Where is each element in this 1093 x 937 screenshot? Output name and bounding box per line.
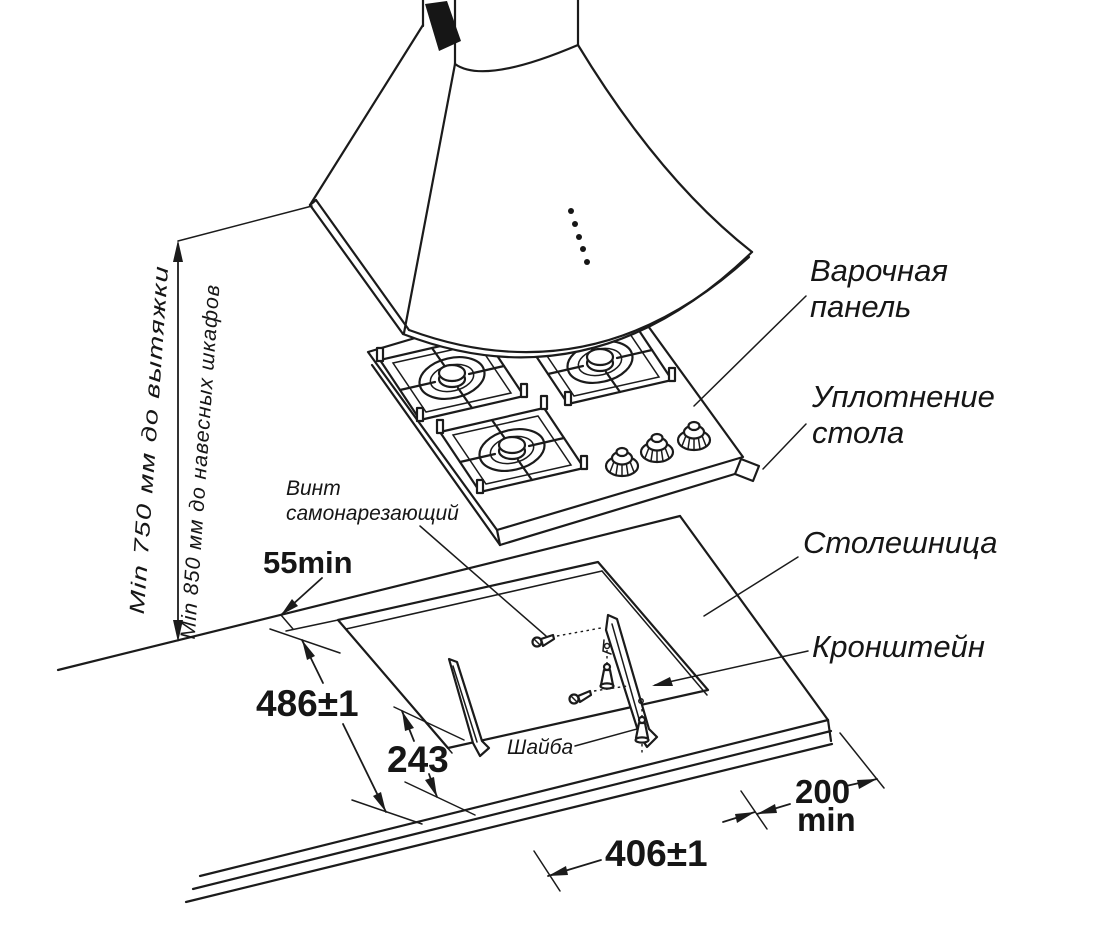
dim-cutout-width: 406±1 (605, 833, 708, 874)
leader-seal (763, 424, 806, 469)
leader-washer (575, 729, 637, 746)
mounting-parts (449, 615, 657, 756)
dim-cutout-depth: 486±1 (256, 683, 359, 724)
label-clearance-cabinets: Min 850 мм до навесных шкафов (177, 283, 225, 640)
label-panel-line2: панель (810, 289, 911, 324)
label-panel-line1: Варочная (810, 253, 948, 288)
dimension-texts: 55min 486±1 243 406±1 200 min (256, 545, 856, 874)
label-clearance-hood: Min 750 мм до вытяжки (126, 264, 173, 615)
dimension-cutout-depth (270, 629, 422, 824)
label-seal-line2: стола (812, 415, 904, 450)
cutout-opening (338, 562, 708, 753)
cutout-outline (338, 562, 708, 748)
countertop-front-edge-bottom (186, 744, 832, 902)
label-screw-line2: самонарезающий (286, 502, 459, 525)
dim-bracket-offset: 243 (387, 739, 449, 780)
dim-rear-gap: 55min (263, 545, 353, 580)
leader-screw (420, 526, 546, 636)
label-countertop: Столешница (803, 525, 998, 560)
bracket-hole-top (605, 644, 610, 649)
dimension-rear-gap (281, 578, 338, 631)
range-hood-drawing (310, 0, 752, 357)
leader-panel (694, 296, 806, 406)
bracket-left (449, 659, 489, 756)
diagram-canvas: Min 750 мм до вытяжки Min 850 мм до наве… (0, 0, 1093, 937)
washer-top (601, 650, 614, 689)
label-washer: Шайба (507, 736, 573, 759)
cutout-inner-left (346, 629, 452, 753)
label-screw-line1: Винт (286, 477, 341, 500)
installation-diagram: Min 750 мм до вытяжки Min 850 мм до наве… (0, 0, 1093, 937)
label-bracket: Кронштейн (812, 629, 985, 664)
cutout-inner-back (346, 571, 602, 629)
countertop-drawing (58, 516, 832, 902)
table-seal-lip (735, 459, 759, 481)
screw-top (533, 635, 555, 647)
dim-side-margin-unit: min (797, 801, 856, 838)
screw-top-guide (557, 628, 601, 636)
screw-bottom (570, 691, 592, 704)
leader-countertop (704, 557, 798, 616)
hood-body-fill (310, 0, 752, 357)
label-seal-line1: Уплотнение (811, 379, 995, 414)
leader-bracket-arrowhead (652, 677, 673, 686)
